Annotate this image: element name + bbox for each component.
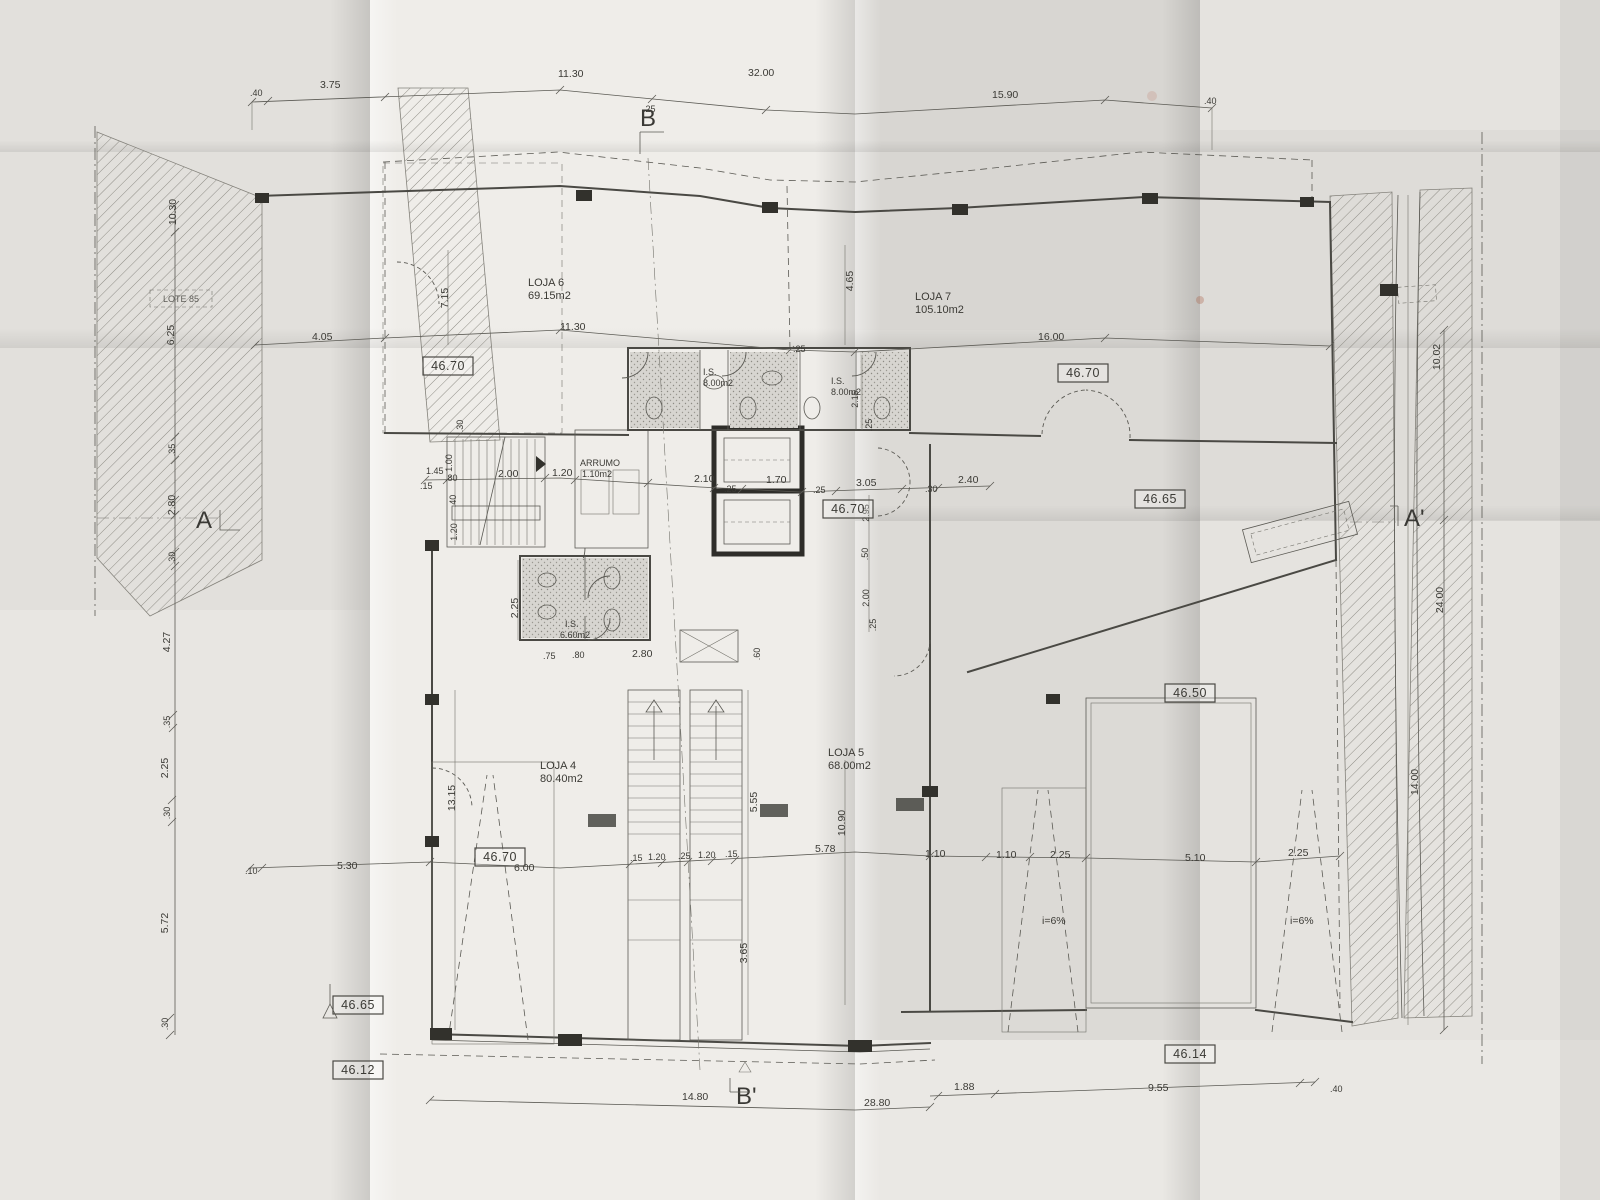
- dim-label: 5.10: [1185, 852, 1206, 864]
- dim-label: .35: [167, 444, 177, 457]
- level-marker: 46.50: [1165, 684, 1215, 702]
- svg-text:ARRUMO: ARRUMO: [580, 458, 620, 468]
- dim-label: .25: [724, 484, 737, 494]
- level-marker: 46.12: [333, 1061, 383, 1079]
- dim-label: .35: [162, 716, 172, 729]
- wc-block-top: [622, 348, 910, 430]
- dim-label: 15.90: [992, 89, 1018, 101]
- svg-text:LOJA 4: LOJA 4: [540, 760, 576, 772]
- dim-label: .15: [725, 849, 738, 859]
- dim-label: 1.88: [954, 1081, 975, 1093]
- dim-label: 5.72: [159, 913, 171, 934]
- dim-label: 32.00: [748, 67, 774, 79]
- svg-text:80.40m2: 80.40m2: [540, 773, 583, 785]
- svg-text:1.10m2: 1.10m2: [582, 469, 612, 479]
- svg-text:LOTE 85: LOTE 85: [163, 294, 199, 304]
- dim-label: .25: [868, 619, 878, 632]
- section-a-prime: A': [1404, 505, 1425, 532]
- svg-text:6.60m2: 6.60m2: [560, 630, 590, 640]
- dim-label: 4.65: [844, 271, 856, 292]
- dim-label: 28.80: [864, 1097, 890, 1109]
- dim-label: .30: [167, 552, 177, 565]
- dim-label: 1.20: [552, 467, 573, 479]
- dim-label: 10.30: [167, 199, 179, 225]
- section-b-prime: B': [736, 1083, 757, 1110]
- ramp-slope-label: i=6%: [1290, 915, 1314, 927]
- dim-label: .80: [445, 473, 458, 483]
- svg-text:105.10m2: 105.10m2: [915, 304, 964, 316]
- dim-label: 1.10: [925, 848, 946, 860]
- dim-label: 13.15: [446, 785, 458, 811]
- dim-label: 2.25: [509, 598, 521, 619]
- svg-text:46.65: 46.65: [1143, 492, 1177, 506]
- dim-label: .30: [455, 420, 465, 433]
- dim-label: 3.65: [738, 943, 750, 964]
- dim-label: 1.45: [426, 466, 444, 476]
- svg-text:46.50: 46.50: [1173, 686, 1207, 700]
- dim-label: .30: [160, 1018, 170, 1031]
- dim-label: 1.00: [444, 454, 454, 472]
- dim-label: 11.30: [560, 321, 586, 333]
- dim-label: .25: [678, 851, 691, 861]
- dim-label: 2.40: [958, 474, 979, 486]
- dim-label: .50: [860, 548, 870, 561]
- level-marker: 46.65: [1135, 490, 1185, 508]
- level-marker: 46.70: [475, 848, 525, 866]
- svg-text:46.70: 46.70: [1066, 366, 1100, 380]
- dim-label: 2.10: [694, 473, 715, 485]
- svg-text:68.00m2: 68.00m2: [828, 760, 871, 772]
- level-marker: 46.65: [333, 996, 383, 1014]
- dim-label: .40: [448, 495, 458, 508]
- svg-text:LOJA 7: LOJA 7: [915, 291, 951, 303]
- dim-label: 3.75: [320, 79, 341, 91]
- svg-text:69.15m2: 69.15m2: [528, 290, 571, 302]
- svg-text:LOJA 6: LOJA 6: [528, 277, 564, 289]
- dim-label: 10.02: [1431, 344, 1443, 370]
- dim-label: 4.05: [312, 331, 333, 343]
- level-marker: 46.70: [423, 357, 473, 375]
- dim-label: 14.80: [682, 1091, 708, 1103]
- level-marker: 46.14: [1165, 1045, 1215, 1063]
- svg-text:LOJA 5: LOJA 5: [828, 747, 864, 759]
- dim-label: 1.20: [648, 852, 666, 862]
- dim-label: 16.00: [1038, 331, 1064, 343]
- ramp-slope-label: i=6%: [1042, 915, 1066, 927]
- dim-label: 2.80: [166, 495, 178, 516]
- dim-label: 3.05: [856, 477, 877, 489]
- dim-label: .40: [1330, 1084, 1343, 1094]
- svg-text:I.S.: I.S.: [565, 619, 579, 629]
- dim-label: .40: [1204, 96, 1217, 106]
- dim-label: 14.00: [1409, 769, 1421, 795]
- svg-text:8.00m2: 8.00m2: [831, 387, 861, 397]
- dim-label: 5.55: [748, 792, 760, 813]
- dim-label: .75: [543, 651, 556, 661]
- dim-label: 1.20: [698, 850, 716, 860]
- dim-label: 5.78: [815, 843, 836, 855]
- dim-label: 2.00: [861, 589, 871, 607]
- dim-label: .60: [752, 648, 762, 661]
- section-a: A: [196, 507, 212, 534]
- dim-label: .10: [245, 866, 258, 876]
- svg-text:46.70: 46.70: [483, 850, 517, 864]
- dim-label: 2.25: [1288, 847, 1309, 859]
- dim-label: 1.20: [449, 523, 459, 541]
- svg-text:I.S.: I.S.: [703, 367, 717, 377]
- dim-label: 7.15: [439, 288, 451, 309]
- dim-label: .25: [793, 344, 806, 354]
- dim-label: 2.25: [159, 758, 171, 779]
- svg-text:46.14: 46.14: [1173, 1047, 1207, 1061]
- wc-block-lower: [520, 556, 650, 640]
- section-b: B: [640, 105, 656, 132]
- dim-label: .15: [420, 481, 433, 491]
- svg-text:46.65: 46.65: [341, 998, 375, 1012]
- dim-label: 10.90: [836, 810, 848, 836]
- dim-label: 9.55: [1148, 1082, 1169, 1094]
- photographed-floor-plan: .40 3.75 11.30 32.00 .25 15.90 .40 10.30…: [0, 0, 1600, 1200]
- svg-text:46.70: 46.70: [831, 502, 865, 516]
- svg-text:I.S.: I.S.: [831, 376, 845, 386]
- svg-text:46.12: 46.12: [341, 1063, 375, 1077]
- dim-label: 2.80: [632, 648, 653, 660]
- dim-label: .25: [813, 485, 826, 495]
- dim-label: .30: [162, 807, 172, 820]
- dim-label: 5.30: [337, 860, 358, 872]
- dim-label: 11.30: [558, 68, 584, 80]
- dim-label: 1.10: [996, 849, 1017, 861]
- dim-label: 24.00: [1434, 587, 1446, 613]
- svg-text:46.70: 46.70: [431, 359, 465, 373]
- dim-label: 4.27: [161, 632, 173, 653]
- dim-label: 2.25: [1050, 849, 1071, 861]
- dim-label: .15: [630, 853, 643, 863]
- dim-label: 6.25: [165, 325, 177, 346]
- floor-plan-drawing: .40 3.75 11.30 32.00 .25 15.90 .40 10.30…: [0, 0, 1600, 1200]
- dim-label: .30: [925, 484, 938, 494]
- svg-text:8.00m2: 8.00m2: [703, 378, 733, 388]
- dim-label: 2.00: [498, 468, 519, 480]
- dim-label: .80: [572, 650, 585, 660]
- dim-label: .25: [864, 419, 874, 432]
- level-marker: 46.70: [823, 500, 873, 518]
- level-marker: 46.70: [1058, 364, 1108, 382]
- dim-label: 1.70: [766, 474, 787, 486]
- dim-label: .40: [250, 88, 263, 98]
